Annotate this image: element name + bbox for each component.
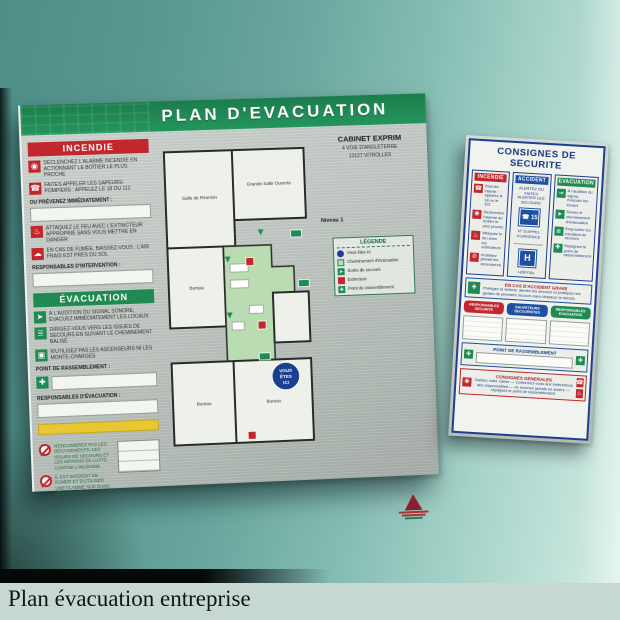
site-address: CABINET EXPRIM 4 VOIE D'ANGLETERRE 13127… xyxy=(318,132,422,160)
extinguisher-marker-icon xyxy=(246,257,254,265)
rassemblement-strip: ✚ POINT DE RASSEMBLEMENT ✚ xyxy=(460,342,588,372)
exit-sign-icon xyxy=(298,279,309,286)
consignes-item: ⊘ N'utilisez jamais les ascenseurs xyxy=(469,252,502,268)
assembly-point-icon: ✚ xyxy=(36,376,49,389)
legend-item: ➤ Sortie de secours xyxy=(338,266,411,276)
assembly-point-icon: ✚ xyxy=(464,350,474,360)
you-are-here-legend-icon xyxy=(337,250,344,257)
responsables-evacuation-box xyxy=(37,399,158,418)
consignes-incendie-header: INCENDIE xyxy=(474,173,507,183)
consignes-title: CONSIGNES DE SECURITE xyxy=(472,144,600,173)
samu-15-icon: ☎ 15 xyxy=(519,209,540,227)
hospital-icon: H xyxy=(518,249,536,267)
caption-bar: Plan évacuation entreprise xyxy=(0,583,620,620)
exit-sign-icon xyxy=(290,230,301,237)
extinguisher-icon: ♨ xyxy=(575,389,583,398)
consignes-item: ≣ Empruntez les escaliers de secours xyxy=(554,227,593,243)
consignes-accident-column: ACCIDENT ALERTEZ OU FAITES ALERTER LES S… xyxy=(507,172,551,279)
extinguisher-marker-icon xyxy=(258,321,266,329)
wall-bottom-shadow xyxy=(0,569,330,584)
consignes-item: ◉ Déclenchez l'alarme au boîtier le plus… xyxy=(472,210,505,230)
running-man-icon: ➤ xyxy=(555,210,565,220)
incendie-item: ◉ DÉCLENCHEZ L'ALARME INCENDIE EN ACTION… xyxy=(28,157,149,179)
alarm-icon: ◉ xyxy=(28,160,41,172)
level-label: Niveau 1 xyxy=(321,215,424,225)
hospital-label: HÔPITAL xyxy=(510,269,543,276)
evacuation-arrow-icon: ▼ xyxy=(223,254,233,265)
consignes-incendie-column: INCENDIE ☎ Donnez l'alerte : appelez le … xyxy=(466,169,510,276)
evacuation-arrow-icon: ▼ xyxy=(256,227,266,238)
exit-sign-icon xyxy=(259,353,270,360)
exit-man-icon: ➤ xyxy=(34,311,47,324)
consignes-evacuation-column: EVACUATION ⇥ À l'audition du signal, éva… xyxy=(548,174,599,282)
point-rassemblement-label: POINT DE RASSEMBLEMENT : xyxy=(36,362,157,373)
consignes-item: ✚ Rejoignez le point de rassemblement xyxy=(553,243,592,259)
no-smoking-icon xyxy=(40,475,53,488)
stairs-icon: ≣ xyxy=(34,327,47,340)
responsables-intervention-box xyxy=(32,269,153,287)
incendie-item: ☎ FAITES APPELER LES SAPEURS-POMPIERS : … xyxy=(29,179,150,195)
revision-table xyxy=(117,439,160,473)
urgence-label: N° D'APPEL D'URGENCE xyxy=(512,229,545,240)
site-address-line: 13127 VITROLLES xyxy=(319,151,422,160)
incendie-item: ☁ EN CAS DE FUMÉE, BAISSEZ-VOUS : L'AIR … xyxy=(31,244,152,260)
room-label: Bureau xyxy=(266,398,281,404)
consignes-item: ♨ Attaquez le feu avec les extincteurs xyxy=(470,231,503,251)
legend-item: Vous êtes ici xyxy=(337,248,410,258)
no-elevator-icon: ▣ xyxy=(35,349,48,362)
photo-of-safety-signs-on-wall: PLAN D'EVACUATION INCENDIE ◉ DÉCLENCHEZ … xyxy=(0,0,620,620)
divider xyxy=(514,243,542,246)
alarm-button-icon: ◉ xyxy=(472,210,482,220)
assembly-point-icon: ✚ xyxy=(576,356,586,366)
room-label: Bureau xyxy=(197,401,212,407)
interdiction-item: IL EST INTERDIT DE FUMER ET D'UTILISER U… xyxy=(40,472,115,497)
consignes-evacuation-header: EVACUATION xyxy=(557,178,596,188)
room-label: Bureau xyxy=(189,285,204,291)
consignes-securite-board: CONSIGNES DE SECURITE INCENDIE ☎ Donnez … xyxy=(448,135,609,444)
assembly-point-icon: ✚ xyxy=(553,243,563,253)
instructions-column: INCENDIE ◉ DÉCLENCHEZ L'ALARME INCENDIE … xyxy=(28,139,162,497)
responsables-name-boxes xyxy=(462,316,590,347)
caption-text: Plan évacuation entreprise xyxy=(0,583,620,612)
evacuation-item: ≣ DIRIGEZ-VOUS VERS LES ISSUES DE SECOUR… xyxy=(34,323,155,346)
accident-intro: ALERTEZ OU FAITES ALERTER LES SECOURS xyxy=(514,186,547,206)
phone-icon: ☎ xyxy=(576,378,584,387)
phone-icon: ☎ xyxy=(29,182,42,194)
consignes-item: ➤ Suivez le cheminement d'évacuation xyxy=(555,210,594,226)
extinguisher-marker-icon xyxy=(248,431,256,439)
legend-item: Extincteur xyxy=(338,275,411,285)
consignes-generales: ◉ CONSIGNES GENERALES Gardez votre calme… xyxy=(459,368,587,401)
extinguisher-icon: ♨ xyxy=(31,226,44,238)
extinguisher-icon: ♨ xyxy=(471,231,481,241)
pill-securite: RESPONSABLES SECURITE xyxy=(464,301,505,315)
brand-triangle-icon xyxy=(404,493,422,510)
pill-evacuation: RESPONSABLES EVACUATION xyxy=(550,306,591,320)
legend-box: LÉGENDE Vous êtes ici Cheminement d'évac… xyxy=(332,235,415,297)
phone-icon: ☎ xyxy=(474,184,484,194)
incendie-header: INCENDIE xyxy=(28,139,149,157)
evacuation-plan-title: PLAN D'EVACUATION xyxy=(149,98,426,126)
legend-title: LÉGENDE xyxy=(337,238,410,249)
smoke-icon: ☁ xyxy=(31,248,44,260)
first-aid-icon: ✚ xyxy=(468,282,481,295)
consignes-item: ☎ Donnez l'alerte : appelez le 18 ou le … xyxy=(473,184,507,209)
exit-door-icon: ⇥ xyxy=(556,188,566,198)
consignes-frame: CONSIGNES DE SECURITE INCENDIE ☎ Donnez … xyxy=(451,138,605,441)
site-name: CABINET EXPRIM xyxy=(318,132,421,144)
legend-item: Cheminement d'évacuation xyxy=(337,257,410,267)
evacuation-header: ÉVACUATION xyxy=(33,289,154,307)
assembly-legend-icon: ✚ xyxy=(338,286,345,293)
ghost-map-decoration xyxy=(20,102,150,136)
exit-legend-icon: ➤ xyxy=(338,268,345,275)
no-elevator-icon: ⊘ xyxy=(470,252,480,262)
floor-plan: Salle de Réunion Grande Salle Ouverte Bu… xyxy=(153,134,325,492)
legend-item: ✚ Point de rassemblement xyxy=(338,284,411,294)
floor-plan-drawing: Salle de Réunion Grande Salle Ouverte Bu… xyxy=(153,134,324,469)
info-column: CABINET EXPRIM 4 VOIE D'ANGLETERRE 13127… xyxy=(318,130,433,484)
evacuation-item: ➤ À L'AUDITION DU SIGNAL SONORE, ÉVACUEZ… xyxy=(34,307,155,324)
consignes-accident-header: ACCIDENT xyxy=(516,175,549,185)
you-are-here-text: VOUS xyxy=(279,368,292,373)
prevenez-blank-box xyxy=(30,204,151,222)
incendie-item: ♨ ATTAQUEZ LE FEU AVEC L'EXTINCTEUR APPR… xyxy=(31,222,152,244)
interdiction-item: N'ENCOMBREZ PAS LES DÉGAGEMENTS, LES ISS… xyxy=(39,441,115,471)
point-rassemblement-row: ✚ xyxy=(36,372,157,391)
stairs-icon: ≣ xyxy=(554,227,564,237)
consignes-item: ⇥ À l'audition du signal, évacuez les lo… xyxy=(556,188,595,209)
evacuation-arrow-icon: ▼ xyxy=(225,310,235,321)
alarm-button-icon: ◉ xyxy=(462,377,472,387)
interdictions-block: N'ENCOMBREZ PAS LES DÉGAGEMENTS, LES ISS… xyxy=(38,435,161,497)
evacuation-item: ▣ N'UTILISEZ PAS LES ASCENSEURS NI LES M… xyxy=(35,345,156,362)
brand-logo xyxy=(398,493,428,519)
no-obstruction-icon xyxy=(39,444,52,457)
point-rassemblement-box xyxy=(51,372,157,390)
path-legend-icon xyxy=(337,259,344,266)
yellow-highlight-strip xyxy=(38,419,159,435)
extinguisher-legend-icon xyxy=(338,277,345,284)
evacuation-plan-board: PLAN D'EVACUATION INCENDIE ◉ DÉCLENCHEZ … xyxy=(18,93,439,491)
you-are-here-text: ICI xyxy=(283,380,289,385)
pill-secouristes: SAUVETEURS SECOURISTES xyxy=(507,303,548,317)
